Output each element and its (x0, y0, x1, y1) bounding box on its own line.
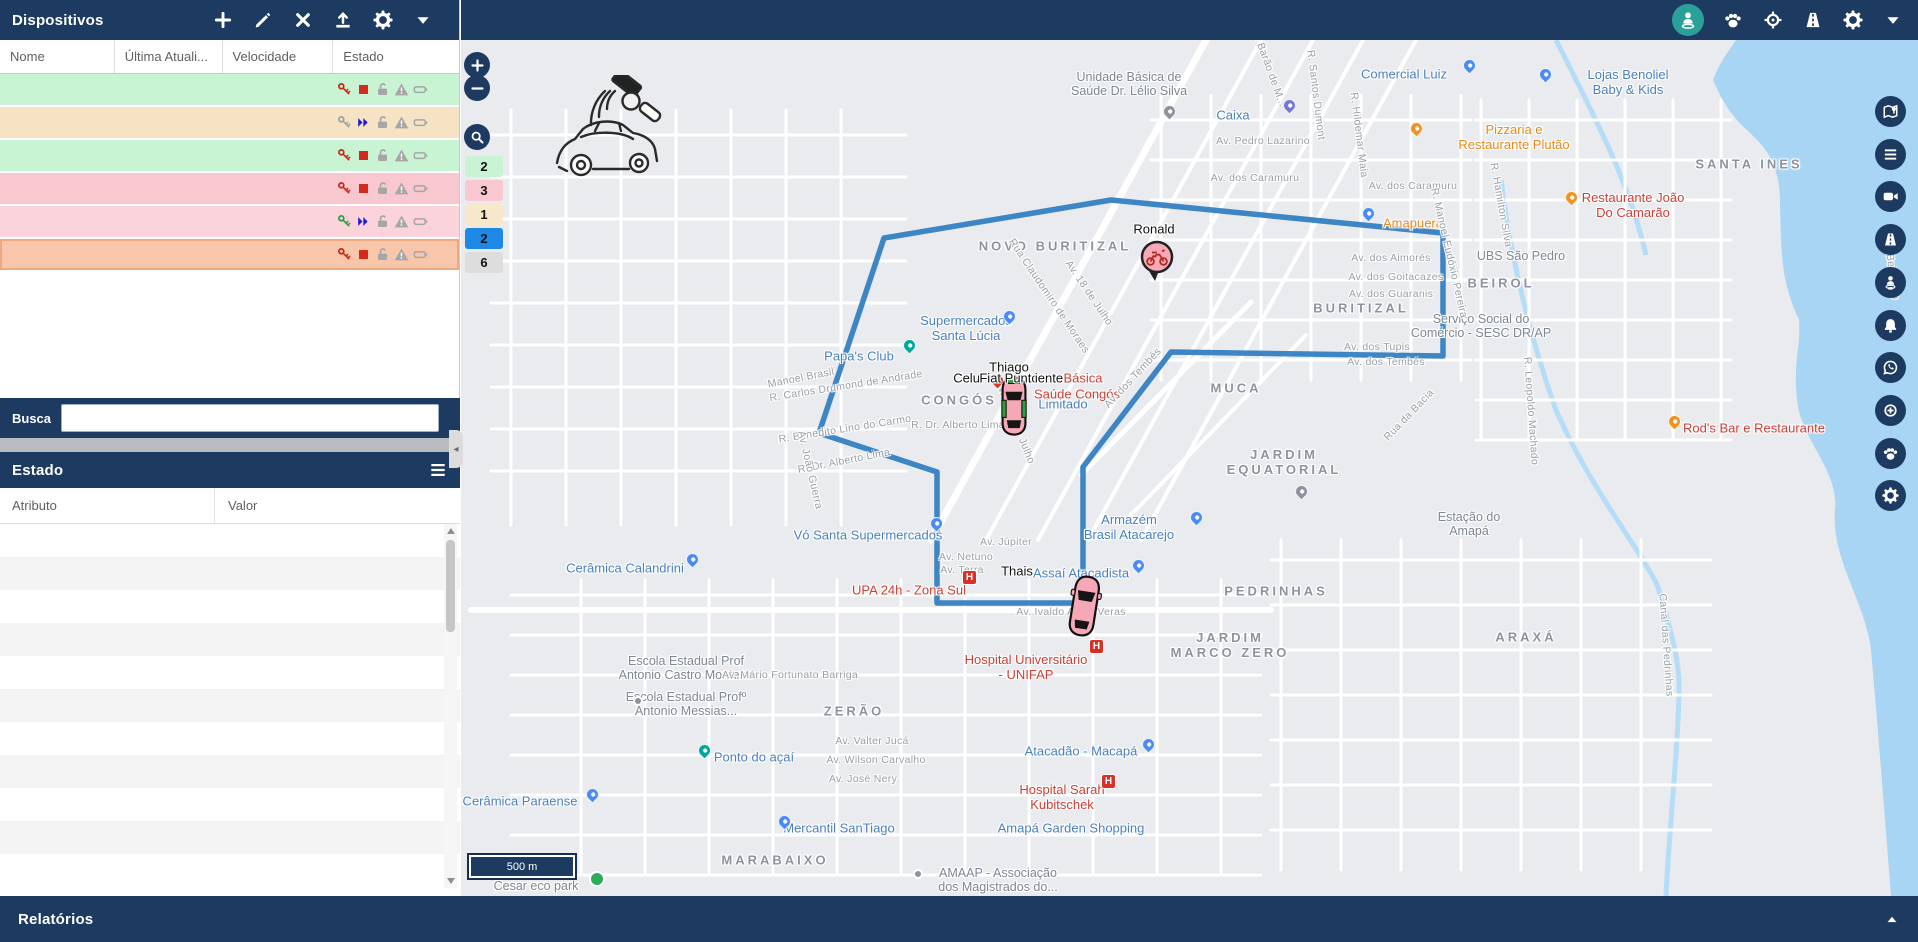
person-icon[interactable] (1672, 4, 1704, 36)
device-row-3[interactable] (0, 140, 459, 173)
canal-north (1556, 40, 1646, 255)
search-label: Busca (12, 411, 51, 426)
column-header-attribute[interactable]: Atributo (0, 488, 215, 523)
sidebar-collapse-tab[interactable]: ◂ (449, 430, 463, 468)
state-attribute (0, 656, 215, 689)
state-scrollbar[interactable] (444, 524, 457, 888)
side-button-bell-icon[interactable] (1875, 310, 1906, 341)
close-icon[interactable] (293, 10, 313, 30)
map-scale-bar: 500 m (469, 855, 575, 878)
state-value (215, 557, 228, 590)
battery-icon (413, 115, 428, 130)
state-attribute (0, 821, 215, 854)
chevron-up-icon[interactable] (1884, 911, 1900, 927)
side-button-paw-icon[interactable] (1875, 438, 1906, 469)
state-value (215, 755, 228, 788)
scale-label: 500 m (507, 861, 538, 873)
device-name (0, 239, 115, 270)
state-row-6 (0, 689, 460, 722)
battery-icon (413, 82, 428, 97)
pencil-icon[interactable] (253, 10, 273, 30)
device-name (0, 107, 115, 138)
device-speed (223, 107, 334, 138)
unlock-icon (375, 82, 390, 97)
devices-toolbar (213, 10, 447, 30)
battery-icon (413, 247, 428, 262)
chevron-down-icon[interactable] (1882, 9, 1904, 31)
cluster-chip-2[interactable]: 3 (465, 180, 503, 201)
unlock-icon (375, 247, 390, 262)
state-value-link[interactable] (215, 788, 228, 821)
state-value (215, 656, 228, 689)
device-row-6[interactable] (0, 239, 459, 272)
side-button-list-icon[interactable] (1875, 139, 1906, 170)
side-button-person-pin-icon[interactable] (1875, 267, 1906, 298)
state-row-2 (0, 557, 460, 590)
moving-icon (356, 115, 371, 130)
cluster-chip-4[interactable]: 2 (465, 228, 503, 249)
device-name (0, 74, 115, 105)
state-value (215, 590, 228, 623)
key-icon (337, 115, 352, 130)
scroll-up-arrow[interactable] (447, 528, 455, 534)
device-updated (115, 107, 223, 138)
device-speed (223, 173, 334, 204)
state-row-7 (0, 722, 460, 755)
state-value (215, 821, 228, 854)
warning-icon (394, 181, 409, 196)
poi-marker (589, 871, 605, 887)
cluster-chip-1[interactable]: 2 (465, 156, 503, 177)
paw-icon[interactable] (1722, 9, 1744, 31)
state-value (215, 623, 228, 656)
vehicle-marker-ronald[interactable] (1137, 239, 1177, 290)
search-input[interactable] (61, 404, 439, 432)
column-header-value[interactable]: Valor (215, 488, 257, 523)
column-header-name[interactable]: Nome (0, 40, 115, 73)
key-icon (337, 82, 352, 97)
device-updated (115, 74, 223, 105)
state-attribute (0, 623, 215, 656)
state-row-1 (0, 524, 460, 557)
side-button-whatsapp-icon[interactable] (1875, 352, 1906, 383)
search-area-button[interactable] (464, 124, 490, 150)
warning-icon (394, 115, 409, 130)
hospital-marker: H (962, 570, 977, 585)
state-value (215, 722, 228, 755)
cluster-chip-5[interactable]: 6 (465, 252, 503, 273)
map-toolbar (461, 0, 1918, 40)
device-name (0, 140, 115, 171)
warning-icon (394, 247, 409, 262)
cluster-chip-3[interactable]: 1 (465, 204, 503, 225)
reports-bar[interactable]: Relatórios (0, 896, 1918, 942)
state-row-5 (0, 656, 460, 689)
reports-title: Relatórios (18, 911, 93, 928)
warning-icon (394, 214, 409, 229)
stopped-icon (356, 247, 371, 262)
device-name (0, 206, 115, 237)
device-speed (223, 239, 334, 270)
map-area: 23126 (461, 0, 1918, 896)
state-value (215, 689, 228, 722)
battery-icon (413, 148, 428, 163)
key-icon (337, 148, 352, 163)
hospital-marker: H (1101, 774, 1116, 789)
poi-marker (913, 869, 923, 879)
scroll-down-arrow[interactable] (447, 878, 455, 884)
device-row-5[interactable] (0, 206, 459, 239)
device-speed (223, 140, 334, 171)
state-attribute (0, 755, 215, 788)
column-header-state[interactable]: Estado (333, 40, 459, 73)
unlock-icon (375, 115, 390, 130)
panel-divider (0, 438, 460, 452)
poi-marker (633, 696, 643, 706)
state-panel-title: Estado (12, 462, 63, 479)
key-icon (337, 214, 352, 229)
unlock-icon (375, 214, 390, 229)
side-button-crosshair-plus-icon[interactable] (1875, 395, 1906, 426)
state-row-8 (0, 755, 460, 788)
device-speed (223, 74, 334, 105)
device-row-2[interactable] (0, 107, 459, 140)
state-table (0, 524, 460, 887)
map-canvas[interactable]: 23126 (461, 40, 1918, 896)
column-header-updated[interactable]: Última Atuali... (115, 40, 223, 73)
device-speed (223, 206, 334, 237)
state-row-9 (0, 788, 460, 821)
state-attribute (0, 788, 215, 821)
devices-panel-header: Dispositivos (0, 0, 459, 40)
device-status-icons (333, 107, 459, 138)
stopped-icon (356, 148, 371, 163)
unlock-icon (375, 148, 390, 163)
device-status-icons (333, 173, 459, 204)
device-updated (115, 173, 223, 204)
device-updated (115, 140, 223, 171)
devices-table (0, 74, 459, 272)
state-row-4 (0, 623, 460, 656)
zoom-out-button[interactable] (464, 75, 490, 101)
list-icon[interactable] (428, 460, 448, 480)
stopped-icon (356, 181, 371, 196)
gear-icon[interactable] (373, 10, 393, 30)
state-attribute (0, 524, 215, 557)
vehicle-marker-cluster-car[interactable] (992, 376, 1036, 441)
state-panel-header: Estado (0, 452, 460, 488)
battery-icon (413, 181, 428, 196)
crosshair-icon[interactable] (1762, 9, 1784, 31)
state-attribute (0, 854, 215, 887)
search-bar: Busca (0, 398, 460, 438)
warning-icon (394, 82, 409, 97)
device-updated (115, 206, 223, 237)
side-button-map-pin-icon[interactable] (1875, 96, 1906, 127)
state-attribute (0, 689, 215, 722)
warning-icon (394, 148, 409, 163)
upload-icon[interactable] (333, 10, 353, 30)
side-button-road-icon[interactable] (1875, 224, 1906, 255)
state-row-3 (0, 590, 460, 623)
devices-panel-title: Dispositivos (12, 12, 104, 29)
device-status-icons (333, 140, 459, 171)
state-attribute (0, 590, 215, 623)
state-row-11 (0, 854, 460, 887)
scrollbar-thumb[interactable] (446, 540, 455, 632)
road-icon[interactable] (1802, 9, 1824, 31)
state-attribute (0, 557, 215, 590)
device-name (0, 173, 115, 204)
unlock-icon (375, 181, 390, 196)
state-value (215, 524, 228, 557)
state-panel: Estado Atributo Valor (0, 452, 460, 896)
state-table-header: Atributo Valor (0, 488, 460, 524)
key-icon (337, 247, 352, 262)
state-row-10 (0, 821, 460, 854)
device-row-4[interactable] (0, 173, 459, 206)
state-value (215, 854, 228, 887)
state-attribute (0, 722, 215, 755)
device-updated (115, 239, 223, 270)
stopped-icon (356, 82, 371, 97)
battery-icon (413, 214, 428, 229)
device-row-1[interactable] (0, 74, 459, 107)
devices-sidebar: Dispositivos Nome Última Atuali... Veloc… (0, 0, 460, 896)
gps-logo-watermark (551, 75, 671, 185)
device-status-icons (333, 206, 459, 237)
devices-table-header: Nome Última Atuali... Velocidade Estado (0, 40, 459, 74)
device-status-icons (333, 74, 459, 105)
device-status-icons (333, 239, 459, 270)
route-polyline (819, 200, 1443, 603)
plus-icon[interactable] (213, 10, 233, 30)
key-icon (337, 181, 352, 196)
basemap (461, 40, 1918, 896)
moving-icon (356, 214, 371, 229)
gear-icon[interactable] (1842, 9, 1864, 31)
chevron-down-icon[interactable] (413, 10, 433, 30)
column-header-speed[interactable]: Velocidade (223, 40, 334, 73)
